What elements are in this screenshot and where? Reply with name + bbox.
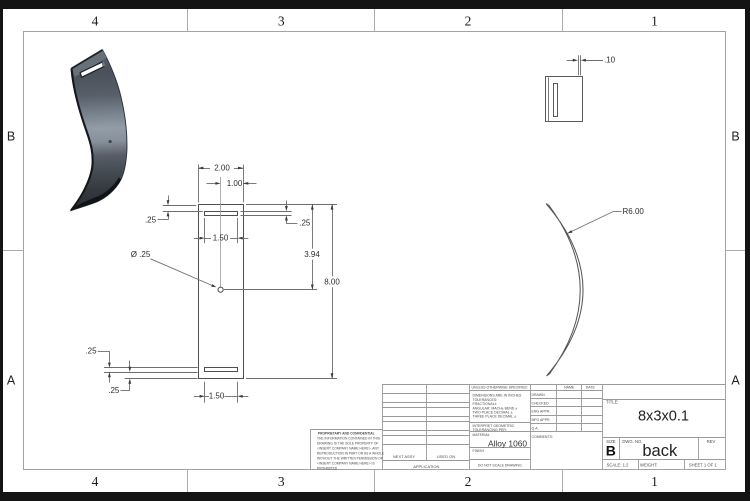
svg-text:1.00: 1.00 [227, 179, 243, 188]
svg-text:8.00: 8.00 [324, 277, 340, 286]
svg-text:DO NOT SCALE DRAWING: DO NOT SCALE DRAWING [478, 464, 522, 468]
svg-text:APPLICATION: APPLICATION [413, 464, 439, 469]
svg-text:UNLESS OTHERWISE SPECIFIED:: UNLESS OTHERWISE SPECIFIED: [472, 385, 529, 389]
svg-text:WEIGHT:: WEIGHT: [640, 463, 657, 468]
svg-text:WITHOUT THE WRITTEN PERMISSION: WITHOUT THE WRITTEN PERMISSION OF [317, 457, 383, 461]
svg-text:REV: REV [707, 439, 716, 444]
svg-text:COMMENTS:: COMMENTS: [532, 435, 553, 439]
svg-text:FINISH: FINISH [473, 449, 485, 453]
svg-text:2: 2 [465, 13, 472, 28]
svg-text:DRAWING IS THE SOLE PROPERTY O: DRAWING IS THE SOLE PROPERTY OF [317, 442, 378, 446]
svg-text:3: 3 [278, 474, 285, 489]
svg-text:REPRODUCTION IN PART OR AS A W: REPRODUCTION IN PART OR AS A WHOLE [317, 452, 385, 456]
svg-text:USED ON: USED ON [437, 454, 455, 459]
svg-text:.25: .25 [145, 216, 157, 225]
svg-text:1.50: 1.50 [209, 392, 225, 401]
svg-text:NAME: NAME [564, 385, 575, 389]
svg-text:TITLE:: TITLE: [606, 400, 619, 405]
svg-text:PROPRIETARY AND CONFIDENTIAL: PROPRIETARY AND CONFIDENTIAL [318, 432, 375, 436]
svg-text:2.00: 2.00 [214, 163, 230, 172]
svg-text:.25: .25 [108, 386, 120, 395]
svg-text:.25: .25 [85, 347, 97, 356]
svg-text:3: 3 [278, 13, 285, 28]
svg-text:TOLERANCING PER:: TOLERANCING PER: [473, 428, 507, 432]
svg-text:A: A [731, 374, 740, 388]
svg-text:back: back [642, 442, 678, 460]
svg-text:<INSERT COMPANY NAME HERE>. A: <INSERT COMPANY NAME HERE>. ANY [317, 447, 380, 451]
svg-text:DRAWN: DRAWN [532, 393, 546, 397]
svg-text:Alloy 1060: Alloy 1060 [488, 438, 527, 448]
svg-text:B: B [606, 443, 616, 459]
svg-text:MFG APPR.: MFG APPR. [532, 418, 551, 422]
svg-text:4: 4 [92, 13, 99, 28]
svg-text:A: A [7, 374, 16, 388]
svg-text:1: 1 [651, 474, 658, 489]
svg-text:1.50: 1.50 [213, 234, 229, 243]
svg-text:.10: .10 [604, 56, 616, 65]
svg-text:R6.00: R6.00 [623, 207, 645, 216]
svg-text:3.94: 3.94 [304, 250, 320, 259]
svg-text:4: 4 [92, 474, 99, 489]
svg-text:ENG APPR.: ENG APPR. [532, 410, 551, 414]
svg-text:B: B [7, 130, 15, 144]
svg-text:Ø .25: Ø .25 [131, 250, 151, 259]
svg-text:THE INFORMATION CONTAINED IN T: THE INFORMATION CONTAINED IN THIS [317, 437, 381, 441]
svg-text:PROHIBITED.: PROHIBITED. [317, 467, 338, 471]
svg-text:THREE PLACE DECIMAL ±: THREE PLACE DECIMAL ± [473, 415, 517, 419]
svg-text:NEXT ASSY: NEXT ASSY [393, 454, 415, 459]
svg-text:SHEET 1 OF 1: SHEET 1 OF 1 [689, 463, 718, 468]
svg-text:SCALE: 1:2: SCALE: 1:2 [607, 463, 630, 468]
svg-text:2: 2 [465, 474, 472, 489]
svg-text:MATERIAL: MATERIAL [473, 433, 490, 437]
svg-text:<INSERT COMPANY NAME HERE> IS: <INSERT COMPANY NAME HERE> IS [317, 462, 375, 466]
svg-text:.25: .25 [299, 219, 311, 228]
svg-text:B: B [731, 130, 739, 144]
svg-text:1: 1 [651, 13, 658, 28]
svg-text:Q.A.: Q.A. [532, 426, 539, 430]
svg-text:CHECKED: CHECKED [532, 401, 550, 405]
svg-text:DWG. NO.: DWG. NO. [622, 439, 642, 444]
svg-text:8x3x0.1: 8x3x0.1 [638, 408, 689, 424]
svg-text:DATE: DATE [586, 385, 596, 389]
